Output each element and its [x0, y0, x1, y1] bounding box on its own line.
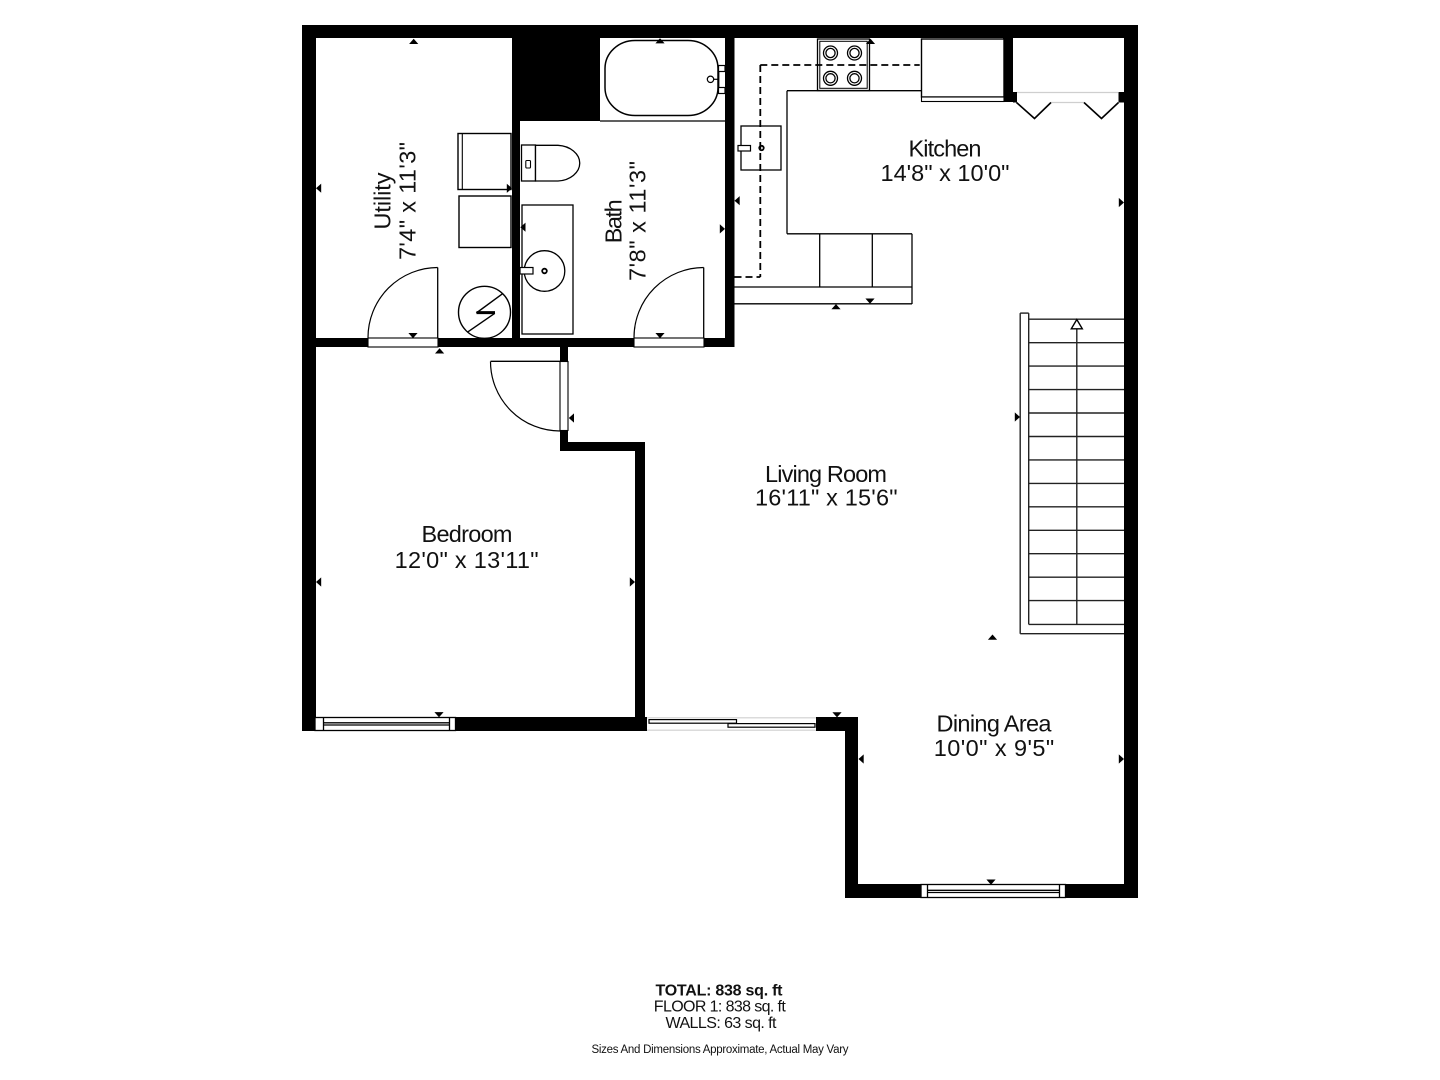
svg-text:Sizes And Dimensions Approxima: Sizes And Dimensions Approximate, Actual…: [592, 1044, 849, 1056]
svg-text:Dining Area: Dining Area: [937, 711, 1053, 737]
svg-text:WALLS: 63 sq. ft: WALLS: 63 sq. ft: [666, 1015, 778, 1032]
svg-text:12'0" x 13'11": 12'0" x 13'11": [395, 547, 539, 573]
svg-text:14'8" x 10'0": 14'8" x 10'0": [881, 160, 1010, 186]
svg-text:FLOOR 1: 838 sq. ft: FLOOR 1: 838 sq. ft: [654, 999, 787, 1016]
svg-text:Living Room: Living Room: [765, 461, 887, 487]
svg-text:Bath: Bath: [601, 199, 627, 243]
svg-text:7'4" x 11'3": 7'4" x 11'3": [395, 142, 421, 260]
svg-text:7'8" x 11'3": 7'8" x 11'3": [625, 161, 651, 281]
svg-text:16'11" x 15'6": 16'11" x 15'6": [755, 485, 898, 511]
svg-text:Utility: Utility: [370, 172, 396, 229]
svg-text:Bedroom: Bedroom: [422, 521, 513, 547]
svg-text:Kitchen: Kitchen: [909, 136, 982, 162]
svg-text:10'0" x 9'5": 10'0" x 9'5": [934, 735, 1055, 761]
svg-text:TOTAL: 838 sq. ft: TOTAL: 838 sq. ft: [656, 982, 784, 999]
